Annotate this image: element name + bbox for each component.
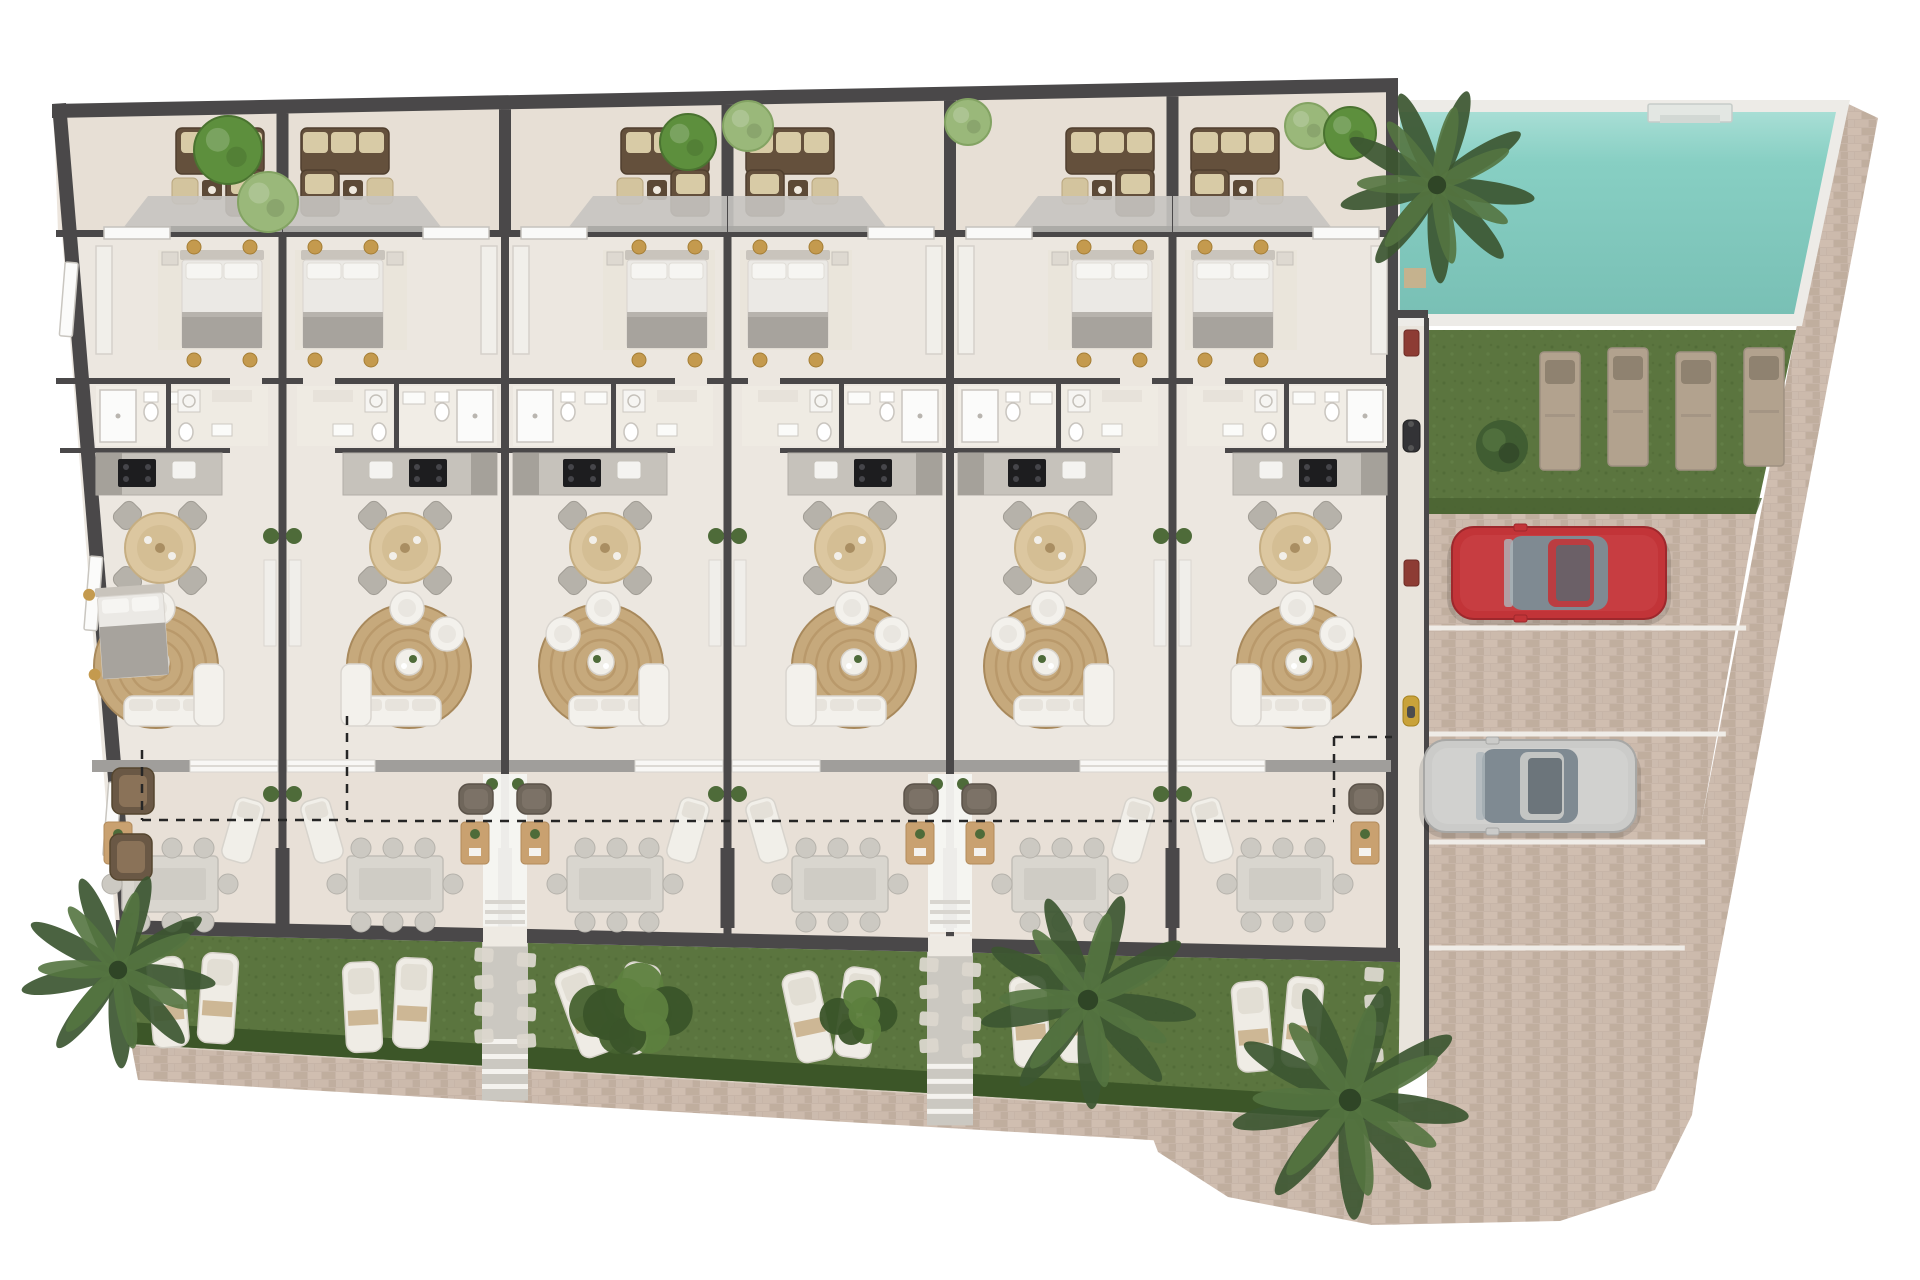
outdoor-chair: [383, 838, 403, 858]
gold-pouf: [364, 240, 378, 254]
wardrobe: [958, 246, 974, 354]
bath-partition: [394, 384, 399, 448]
side-mirror: [1514, 615, 1527, 622]
nightstand: [832, 252, 848, 265]
outdoor-coffee-table: [966, 822, 994, 864]
stepping-stone: [517, 1006, 537, 1021]
wall-pool-corridor: [1392, 310, 1428, 318]
sunroof: [1556, 545, 1590, 601]
bed-blanket: [1193, 316, 1273, 348]
gold-pouf: [187, 353, 201, 367]
terrace-glass-door: [104, 227, 170, 239]
gold-pouf: [1254, 353, 1268, 367]
bath-shelf: [313, 390, 353, 402]
stepping-stone: [474, 1028, 494, 1043]
gold-pouf: [688, 240, 702, 254]
indoor-plant: [286, 528, 302, 544]
tall-cabinet: [958, 453, 984, 495]
toilet: [880, 403, 894, 421]
outdoor-chair: [547, 874, 567, 894]
tv-console: [289, 560, 301, 646]
sink: [848, 392, 870, 404]
tv-console: [1179, 560, 1191, 646]
tv-console: [734, 560, 746, 646]
bed-blanket: [1072, 316, 1152, 348]
dining-set: [556, 499, 655, 598]
door-gap: [1193, 377, 1225, 385]
outdoor-chair: [607, 838, 627, 858]
washer: [1068, 390, 1090, 412]
lawn-sun-lounger: [1540, 352, 1580, 470]
sink: [212, 424, 232, 436]
bed-blanket: [303, 316, 383, 348]
bathroom: [1187, 384, 1387, 448]
washer: [365, 390, 387, 412]
stepping-stone: [1364, 967, 1384, 982]
indoor-plant: [731, 528, 747, 544]
gold-pouf: [688, 353, 702, 367]
outdoor-coffee-table: [521, 822, 549, 864]
outdoor-chair: [639, 912, 659, 932]
gold-pouf: [1254, 240, 1268, 254]
outdoor-chair: [1020, 912, 1040, 932]
kitchen-sink: [1259, 461, 1283, 479]
nightstand: [607, 252, 623, 265]
lawn-sun-lounger: [1744, 348, 1784, 466]
kitchen-sink: [617, 461, 641, 479]
sofa-chaise: [639, 664, 669, 726]
wardrobe: [513, 246, 529, 354]
outdoor-chair: [575, 838, 595, 858]
bath-shelf: [212, 390, 252, 402]
bath-shelf: [657, 390, 697, 402]
red-doormat: [1404, 560, 1419, 586]
outdoor-chair: [1333, 874, 1353, 894]
bath-shelf: [758, 390, 798, 402]
outdoor-chair: [992, 874, 1012, 894]
indoor-plant: [1153, 528, 1169, 544]
dining-set: [1001, 499, 1100, 598]
sofa-chaise: [341, 664, 371, 726]
outdoor-coffee-table: [461, 822, 489, 864]
terrace-privacy-wall: [499, 109, 511, 232]
dining-set: [356, 499, 455, 598]
outdoor-chair: [218, 874, 238, 894]
indoor-plant: [286, 786, 302, 802]
terrace-lintel: [1265, 760, 1391, 772]
gold-pouf: [632, 240, 646, 254]
gold-pouf: [753, 353, 767, 367]
gold-pouf: [1133, 240, 1147, 254]
canopy-edge: [728, 226, 890, 232]
floor-plan-canvas: Residential complex ground floor plan – …: [0, 0, 1920, 1280]
red-doormat: [1404, 330, 1419, 356]
outdoor-chair: [1084, 838, 1104, 858]
sofa-chaise: [194, 664, 224, 726]
indoor-plant: [263, 786, 279, 802]
stepping-stone: [474, 974, 494, 989]
floor-plan-rendering: Residential complex ground floor plan – …: [0, 0, 1920, 1280]
outdoor-chair: [1241, 912, 1261, 932]
cooktop: [854, 459, 892, 487]
wardrobe: [926, 246, 942, 354]
terrace-glass-door: [966, 227, 1032, 239]
gold-pouf: [243, 353, 257, 367]
toilet: [1069, 423, 1083, 441]
tv-console: [1154, 560, 1166, 646]
side-mirror: [1486, 828, 1499, 835]
bath-partition: [1284, 384, 1289, 448]
toilet: [179, 423, 193, 441]
outdoor-chair: [860, 838, 880, 858]
sink: [1030, 392, 1052, 404]
round-tree: [945, 99, 991, 145]
brown-armchair: [112, 768, 154, 814]
yellow-scooter: [1403, 696, 1419, 726]
bath-partition: [1056, 384, 1061, 448]
tv-console: [709, 560, 721, 646]
terrace-lintel: [375, 760, 501, 772]
stepping-stone: [919, 1038, 939, 1053]
round-tree: [660, 114, 716, 170]
gold-pouf: [308, 353, 322, 367]
outdoor-chair: [772, 874, 792, 894]
terrace-wall-stub: [721, 848, 735, 928]
red-car: [1447, 524, 1671, 625]
toilet: [1006, 403, 1020, 421]
outdoor-chair: [415, 838, 435, 858]
kitchen-sink: [1062, 461, 1086, 479]
silver-car: [1419, 737, 1641, 838]
canopy-edge: [565, 226, 727, 232]
windshield: [1504, 539, 1513, 607]
gold-pouf: [1077, 240, 1091, 254]
outdoor-chair: [888, 874, 908, 894]
garden-sun-lounger: [392, 957, 433, 1049]
sunroof: [1528, 758, 1562, 814]
outdoor-chair: [1217, 874, 1237, 894]
terrace-wall-stub: [276, 848, 290, 928]
indoor-plant: [263, 528, 279, 544]
tall-cabinet: [916, 453, 942, 495]
outdoor-chair: [1241, 838, 1261, 858]
gold-pouf: [1198, 240, 1212, 254]
cooktop: [1008, 459, 1046, 487]
outdoor-chair: [327, 874, 347, 894]
tv-console: [264, 560, 276, 646]
bathroom: [513, 384, 713, 448]
gold-pouf: [1198, 353, 1212, 367]
bathroom: [297, 384, 497, 448]
lawn-sun-lounger: [1676, 352, 1716, 470]
bath-shelf: [1203, 390, 1243, 402]
door-gap: [303, 377, 335, 385]
lawn-sun-lounger: [1608, 348, 1648, 466]
bath-shelf: [1102, 390, 1142, 402]
gold-pouf: [753, 240, 767, 254]
dining-set: [111, 499, 210, 598]
cooktop: [118, 459, 156, 487]
kitchen-wall: [780, 448, 950, 453]
outdoor-chair: [162, 838, 182, 858]
outdoor-coffee-table: [1351, 822, 1379, 864]
kitchen-sink: [814, 461, 838, 479]
stepping-stone: [474, 1001, 494, 1016]
outdoor-chair: [1108, 874, 1128, 894]
toilet: [1325, 403, 1339, 421]
sink: [585, 392, 607, 404]
outdoor-chair: [443, 874, 463, 894]
outdoor-chair: [663, 874, 683, 894]
indoor-plant: [731, 786, 747, 802]
kitchen: [780, 448, 950, 495]
terrace-lintel: [820, 760, 946, 772]
toilet: [817, 423, 831, 441]
sofa-chaise: [1084, 664, 1114, 726]
outdoor-chair: [828, 838, 848, 858]
pool-step-mat: [1404, 268, 1426, 288]
front-door-gap: [928, 936, 972, 956]
gold-pouf: [1133, 353, 1147, 367]
round-tree: [723, 101, 773, 151]
gold-pouf: [243, 240, 257, 254]
kitchen-wall: [1225, 448, 1395, 453]
outdoor-coffee-table: [906, 822, 934, 864]
stepping-stone: [962, 1016, 982, 1031]
bathroom: [96, 384, 268, 448]
lawn-tree: [1476, 420, 1528, 472]
coffee-table: [396, 649, 422, 675]
outdoor-chair: [860, 912, 880, 932]
kitchen: [505, 448, 675, 495]
bathroom: [742, 384, 942, 448]
toilet: [144, 403, 158, 421]
indoor-plant: [1176, 786, 1192, 802]
coffee-table: [1286, 649, 1312, 675]
outdoor-chair: [796, 838, 816, 858]
indoor-plant: [1176, 528, 1192, 544]
terrace-lintel: [509, 760, 635, 772]
kitchen-wall: [505, 448, 675, 453]
outdoor-chair: [351, 838, 371, 858]
outdoor-chair: [383, 912, 403, 932]
stepping-stone: [919, 1011, 939, 1026]
kitchen-sink: [172, 461, 196, 479]
outdoor-chair: [1305, 838, 1325, 858]
bath-partition: [166, 384, 171, 448]
gold-pouf: [809, 353, 823, 367]
door-gap: [1120, 377, 1152, 385]
windshield: [1476, 752, 1485, 820]
outdoor-chair: [1020, 838, 1040, 858]
canopy-edge: [283, 226, 445, 232]
kitchen-wall: [950, 448, 1120, 453]
sink: [657, 424, 677, 436]
outdoor-chair: [1305, 912, 1325, 932]
gold-pouf: [308, 240, 322, 254]
sink: [403, 392, 425, 404]
stepping-stone: [517, 979, 537, 994]
stepping-stone: [517, 952, 537, 967]
outer-wall-right: [1386, 80, 1398, 952]
tall-cabinet: [471, 453, 497, 495]
side-mirror: [1514, 524, 1527, 531]
washer: [810, 390, 832, 412]
pool-steps-tread: [1660, 115, 1720, 123]
washer: [178, 390, 200, 412]
toilet: [372, 423, 386, 441]
bed-blanket: [182, 316, 262, 348]
outdoor-chair: [1273, 838, 1293, 858]
stepping-stone: [517, 1033, 537, 1048]
toilet: [1262, 423, 1276, 441]
garden-sun-lounger: [197, 952, 239, 1044]
outdoor-chair: [415, 912, 435, 932]
nightstand: [162, 252, 178, 265]
kitchen-sink: [369, 461, 393, 479]
coffee-table: [588, 649, 614, 675]
coffee-table: [1033, 649, 1059, 675]
canopy-edge: [1173, 226, 1335, 232]
toilet: [561, 403, 575, 421]
bath-partition: [839, 384, 844, 448]
cooktop: [409, 459, 447, 487]
gold-pouf: [187, 240, 201, 254]
sink: [1102, 424, 1122, 436]
kitchen: [335, 448, 505, 495]
sofa-chaise: [786, 664, 816, 726]
tall-cabinet: [513, 453, 539, 495]
gold-pouf: [364, 353, 378, 367]
dark-scooter: [1403, 420, 1420, 452]
nightstand: [387, 252, 403, 265]
stepping-stone: [474, 947, 494, 962]
unit-divider-wall: [279, 114, 287, 930]
door-gap: [230, 377, 262, 385]
sink: [333, 424, 353, 436]
terrace-glass-door: [423, 227, 489, 239]
sink: [1293, 392, 1315, 404]
kitchen: [1225, 448, 1395, 495]
stepping-stone: [919, 984, 939, 999]
terrace-wall-stub: [1166, 848, 1180, 928]
indoor-plant: [708, 786, 724, 802]
kitchen-wall: [60, 448, 230, 453]
terrace-glass-door: [868, 227, 934, 239]
stepping-stone: [962, 962, 982, 977]
bath-partition: [611, 384, 616, 448]
stepping-stone: [919, 957, 939, 972]
coffee-table: [841, 649, 867, 675]
outdoor-chair: [796, 912, 816, 932]
sink: [1223, 424, 1243, 436]
cooktop: [563, 459, 601, 487]
bed-blanket: [748, 316, 828, 348]
dining-set: [801, 499, 900, 598]
dining-set: [1246, 499, 1345, 598]
sink: [778, 424, 798, 436]
front-door-gap: [483, 926, 527, 946]
terrace-glass-door: [521, 227, 587, 239]
outdoor-chair: [194, 838, 214, 858]
brown-armchair: [110, 834, 152, 880]
door-gap: [675, 377, 707, 385]
bathroom: [958, 384, 1158, 448]
nightstand: [1277, 252, 1293, 265]
outdoor-chair: [351, 912, 371, 932]
door-gap: [748, 377, 780, 385]
outdoor-chair: [575, 912, 595, 932]
terrace-lintel: [954, 760, 1080, 772]
terrace-glass-door: [1313, 227, 1379, 239]
washer: [1255, 390, 1277, 412]
lawn-edge: [1427, 498, 1762, 514]
outdoor-chair: [607, 912, 627, 932]
gold-pouf: [809, 240, 823, 254]
wardrobe: [96, 246, 112, 354]
side-mirror: [1486, 737, 1499, 744]
outdoor-chair: [639, 838, 659, 858]
outdoor-chair: [1273, 912, 1293, 932]
indoor-plant: [1153, 786, 1169, 802]
canopy-edge: [1010, 226, 1172, 232]
toilet: [624, 423, 638, 441]
outdoor-chair: [1052, 838, 1072, 858]
garden-sun-lounger: [342, 961, 383, 1053]
stepping-stone: [962, 989, 982, 1004]
kitchen-wall: [335, 448, 505, 453]
gold-pouf: [1077, 353, 1091, 367]
indoor-plant: [708, 528, 724, 544]
kitchen: [950, 448, 1120, 495]
outdoor-chair: [828, 912, 848, 932]
round-tree: [194, 116, 262, 184]
gold-pouf: [632, 353, 646, 367]
stepping-stone: [962, 1043, 982, 1058]
toilet: [435, 403, 449, 421]
sofa-chaise: [1231, 664, 1261, 726]
tall-cabinet: [1361, 453, 1387, 495]
washer: [623, 390, 645, 412]
round-tree: [238, 172, 298, 232]
bed-blanket: [627, 316, 707, 348]
wardrobe: [481, 246, 497, 354]
cooktop: [1299, 459, 1337, 487]
corridor-wall: [1424, 318, 1429, 1062]
nightstand: [1052, 252, 1068, 265]
